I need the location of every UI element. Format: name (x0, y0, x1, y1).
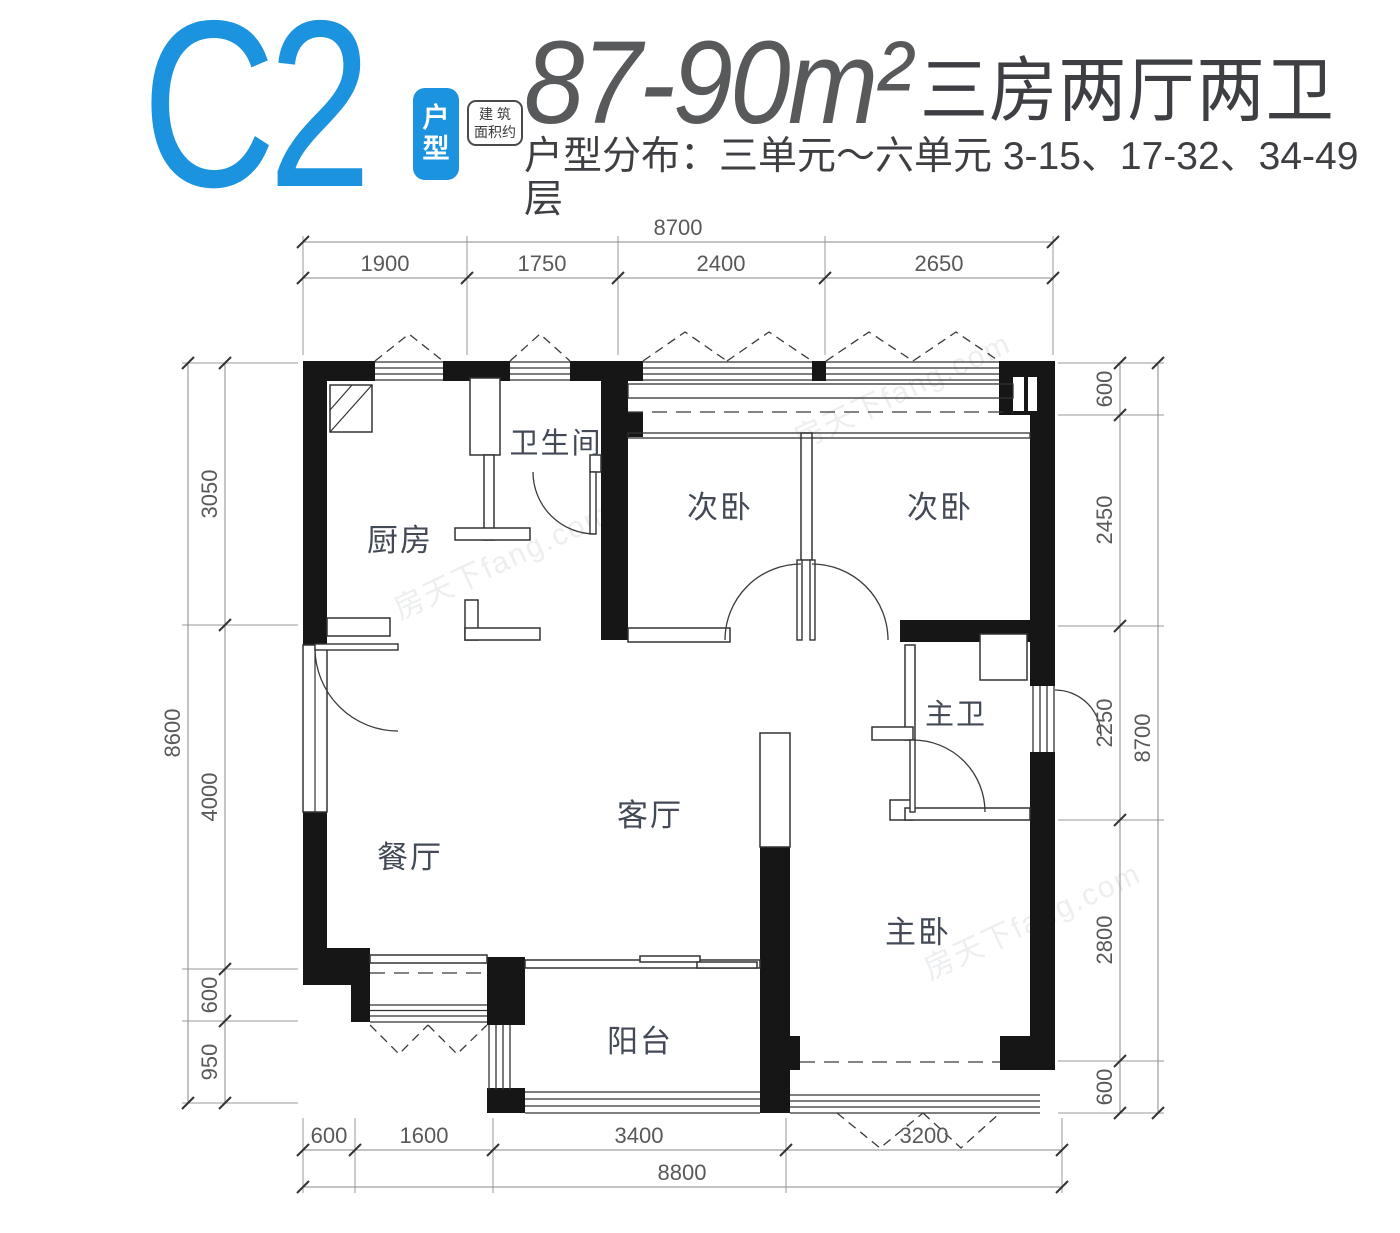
dim-bottom-overall: 8800 (658, 1160, 707, 1185)
balcony-rail-left (489, 1025, 510, 1090)
dim-right-seg: 2800 (1092, 916, 1117, 965)
room-label-bedroom-b: 次卧 (907, 490, 973, 525)
windows (370, 362, 1055, 1113)
casement-icon (826, 332, 913, 361)
window-bathroom (510, 362, 570, 380)
room-label-balcony: 阳台 (607, 1024, 673, 1059)
door-leaf-bedroom-a (797, 560, 802, 640)
wall (570, 361, 643, 381)
dim-top-seg: 1900 (361, 251, 410, 276)
casement-icon (643, 332, 727, 361)
wall (760, 847, 790, 1040)
partition (905, 645, 915, 740)
wall (1000, 1036, 1055, 1070)
door-leaf-kitchen (315, 644, 398, 650)
balcony-post (487, 1088, 525, 1113)
bay-window-edge (370, 955, 487, 963)
partition (455, 528, 530, 540)
corner-window-mullion (1024, 377, 1028, 411)
wall-interior (601, 381, 628, 640)
wall (303, 948, 370, 985)
floor-plan-page: C2 户型 建 筑 面积约 87-90m² 三房两厅两卫 户型分布：三单元～六单… (0, 0, 1400, 1233)
dim-right-seg: 600 (1092, 371, 1117, 408)
sliding-door-leaf (640, 956, 700, 962)
room-label-master-bedroom: 主卧 (885, 915, 951, 950)
master-bay-sill (790, 1095, 1040, 1113)
room-label-master-bathroom: 主卫 (925, 698, 987, 731)
dim-top-overall: 8700 (654, 215, 703, 240)
balcony-rail-bottom (525, 1092, 760, 1113)
wall (351, 985, 370, 1022)
dim-bottom-seg: 3200 (900, 1123, 949, 1148)
casement-icon (727, 332, 812, 361)
dim-right-seg: 2250 (1092, 699, 1117, 748)
duct-shaft (980, 634, 1027, 680)
wall-right (1030, 752, 1055, 1040)
sliding-door-leaf (697, 962, 757, 968)
structural-walls (303, 361, 1055, 1113)
dim-bottom-seg: 600 (311, 1123, 348, 1148)
window-bedroom-a (643, 362, 812, 380)
watermark-text: 房天下fang.com (389, 497, 616, 626)
dim-left-seg: 3050 (197, 470, 222, 519)
wall-pier (487, 957, 525, 1025)
partition (628, 628, 730, 642)
casement-icon (370, 1025, 428, 1054)
room-label-kitchen: 厨房 (367, 523, 433, 558)
partition (905, 808, 1030, 820)
bay-sill-band (628, 384, 1013, 398)
room-label-bathroom: 卫生间 (509, 427, 602, 460)
casement-icon (375, 334, 443, 361)
floor-plan-drawing: 房天下fang.com 房天下fang.com 房天下fang.com (0, 0, 1400, 1233)
wall (812, 361, 826, 381)
dim-left-overall: 8600 (160, 709, 185, 758)
door-arc-master-bath (913, 740, 985, 812)
dining-bay-sill (370, 1005, 487, 1022)
partition (872, 727, 913, 740)
dim-left-seg: 600 (197, 977, 222, 1014)
partition-walls (303, 378, 1030, 968)
door-leaf-master-bath (910, 740, 915, 812)
partition (327, 618, 390, 636)
dim-right-seg: 600 (1092, 1069, 1117, 1106)
window-master-bath-bg (1030, 686, 1055, 752)
partition (465, 628, 540, 640)
dim-left-seg: 950 (197, 1044, 222, 1081)
window-kitchen (375, 362, 443, 380)
dim-top-seg: 2650 (915, 251, 964, 276)
door-leaf-bathroom (590, 472, 596, 534)
door-arc-bedroom-b (812, 564, 888, 640)
duct-shaft (470, 378, 500, 455)
room-label-bedroom-a: 次卧 (687, 490, 753, 525)
dim-right-seg: 2450 (1092, 496, 1117, 545)
wall (760, 1036, 800, 1070)
dim-bottom-seg: 3400 (615, 1123, 664, 1148)
wall-left (303, 812, 327, 952)
door-leaf-bedroom-b (810, 560, 815, 640)
dim-right-overall: 8700 (1130, 714, 1155, 763)
casement-icon (428, 1025, 487, 1054)
dim-top-seg: 1750 (518, 251, 567, 276)
casement-icon (510, 334, 570, 361)
partition (801, 433, 812, 560)
dim-left-seg: 4000 (197, 773, 222, 822)
wall-right (1030, 415, 1055, 686)
door-arc-bedroom-a (725, 564, 801, 640)
watermark-text: 房天下fang.com (789, 327, 1016, 456)
dim-bottom-seg: 1600 (400, 1123, 449, 1148)
wall-left (303, 361, 327, 645)
dim-top-seg: 2400 (697, 251, 746, 276)
partition (760, 733, 790, 847)
room-label-dining-room: 餐厅 (377, 840, 443, 875)
room-label-living-room: 客厅 (617, 798, 683, 833)
